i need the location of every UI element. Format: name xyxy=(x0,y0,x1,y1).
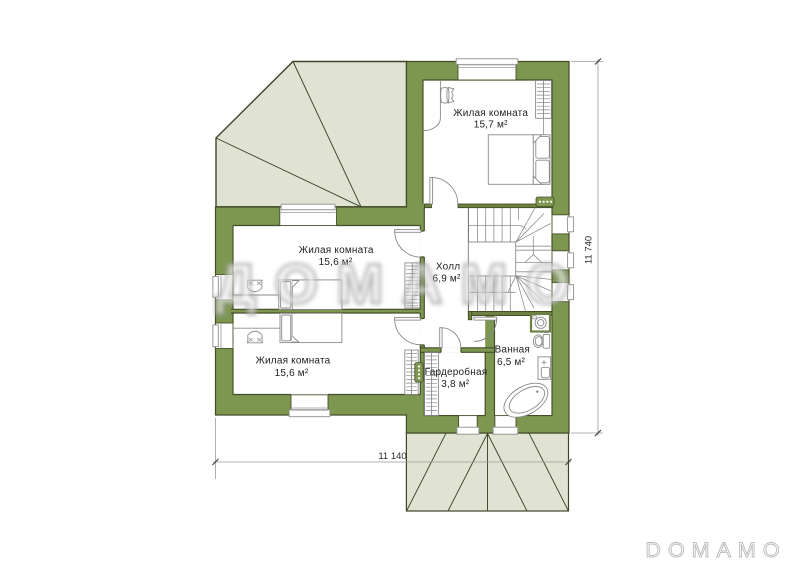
svg-text:Жилая комната: Жилая комната xyxy=(453,108,528,119)
svg-text:6,5 м²: 6,5 м² xyxy=(497,357,526,368)
svg-text:DOMAMO: DOMAMO xyxy=(645,538,786,562)
svg-text:15,6 м²: 15,6 м² xyxy=(275,368,309,379)
svg-text:ДОМАМО: ДОМАМО xyxy=(216,252,588,315)
svg-text:Жилая комната: Жилая комната xyxy=(256,356,331,367)
svg-text:11 140: 11 140 xyxy=(378,451,406,462)
svg-text:Гардеробная: Гардеробная xyxy=(425,366,488,378)
svg-text:3,8 м²: 3,8 м² xyxy=(441,379,470,390)
svg-text:15,7 м²: 15,7 м² xyxy=(474,120,508,131)
svg-text:Ванная: Ванная xyxy=(495,345,530,356)
